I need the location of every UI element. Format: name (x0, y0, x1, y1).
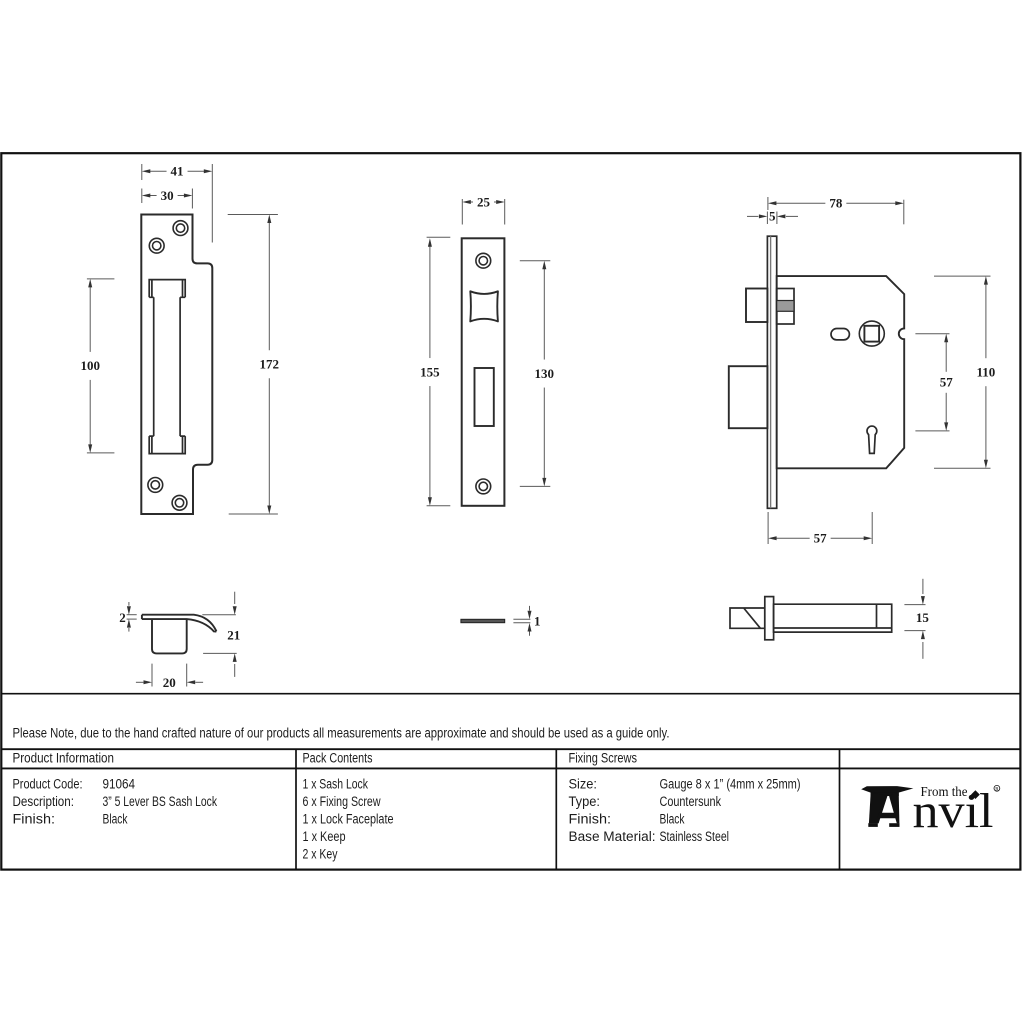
svg-text:Type:: Type: (569, 794, 601, 809)
svg-text:155: 155 (420, 364, 440, 379)
svg-text:Description:: Description: (13, 794, 75, 809)
svg-text:2 x Key: 2 x Key (303, 847, 338, 862)
svg-text:Black: Black (103, 812, 128, 827)
svg-text:78: 78 (829, 196, 843, 211)
svg-text:57: 57 (814, 531, 828, 546)
svg-text:41: 41 (171, 164, 184, 179)
svg-text:Gauge 8 x 1” (4mm x 25mm): Gauge 8 x 1” (4mm x 25mm) (660, 777, 801, 792)
svg-text:Product Information: Product Information (13, 751, 115, 766)
svg-text:Finish:: Finish: (13, 812, 56, 827)
svg-text:21: 21 (227, 628, 240, 643)
svg-text:91064: 91064 (103, 777, 136, 792)
svg-text:110: 110 (977, 365, 996, 380)
svg-text:57: 57 (940, 375, 954, 390)
svg-text:172: 172 (260, 357, 280, 372)
svg-text:3” 5 Lever BS Sash Lock: 3” 5 Lever BS Sash Lock (103, 794, 218, 809)
svg-text:Finish:: Finish: (569, 812, 612, 827)
svg-text:15: 15 (916, 610, 930, 625)
svg-text:20: 20 (163, 675, 176, 690)
svg-text:6 x Fixing Screw: 6 x Fixing Screw (303, 794, 381, 809)
svg-text:Please Note, due to the hand c: Please Note, due to the hand crafted nat… (13, 726, 670, 741)
svg-text:Size:: Size: (569, 777, 598, 792)
svg-text:1 x Lock Faceplate: 1 x Lock Faceplate (303, 812, 394, 827)
svg-text:25: 25 (477, 194, 491, 209)
svg-text:Stainless Steel: Stainless Steel (660, 829, 730, 844)
svg-text:Black: Black (660, 812, 685, 827)
svg-text:Fixing Screws: Fixing Screws (569, 751, 638, 766)
svg-text:1: 1 (534, 614, 541, 629)
svg-text:100: 100 (80, 358, 100, 373)
svg-text:1 x Keep: 1 x Keep (303, 829, 346, 844)
svg-text:Base Material:: Base Material: (569, 829, 656, 844)
svg-text:1 x Sash Lock: 1 x Sash Lock (303, 777, 369, 792)
svg-text:Product Code:: Product Code: (13, 777, 83, 792)
svg-text:5: 5 (769, 209, 776, 224)
svg-text:30: 30 (161, 188, 174, 203)
svg-text:2: 2 (119, 610, 126, 625)
svg-text:Pack Contents: Pack Contents (303, 751, 373, 766)
svg-text:nvil: nvil (913, 783, 994, 838)
svg-text:Countersunk: Countersunk (660, 794, 722, 809)
svg-text:130: 130 (535, 366, 555, 381)
